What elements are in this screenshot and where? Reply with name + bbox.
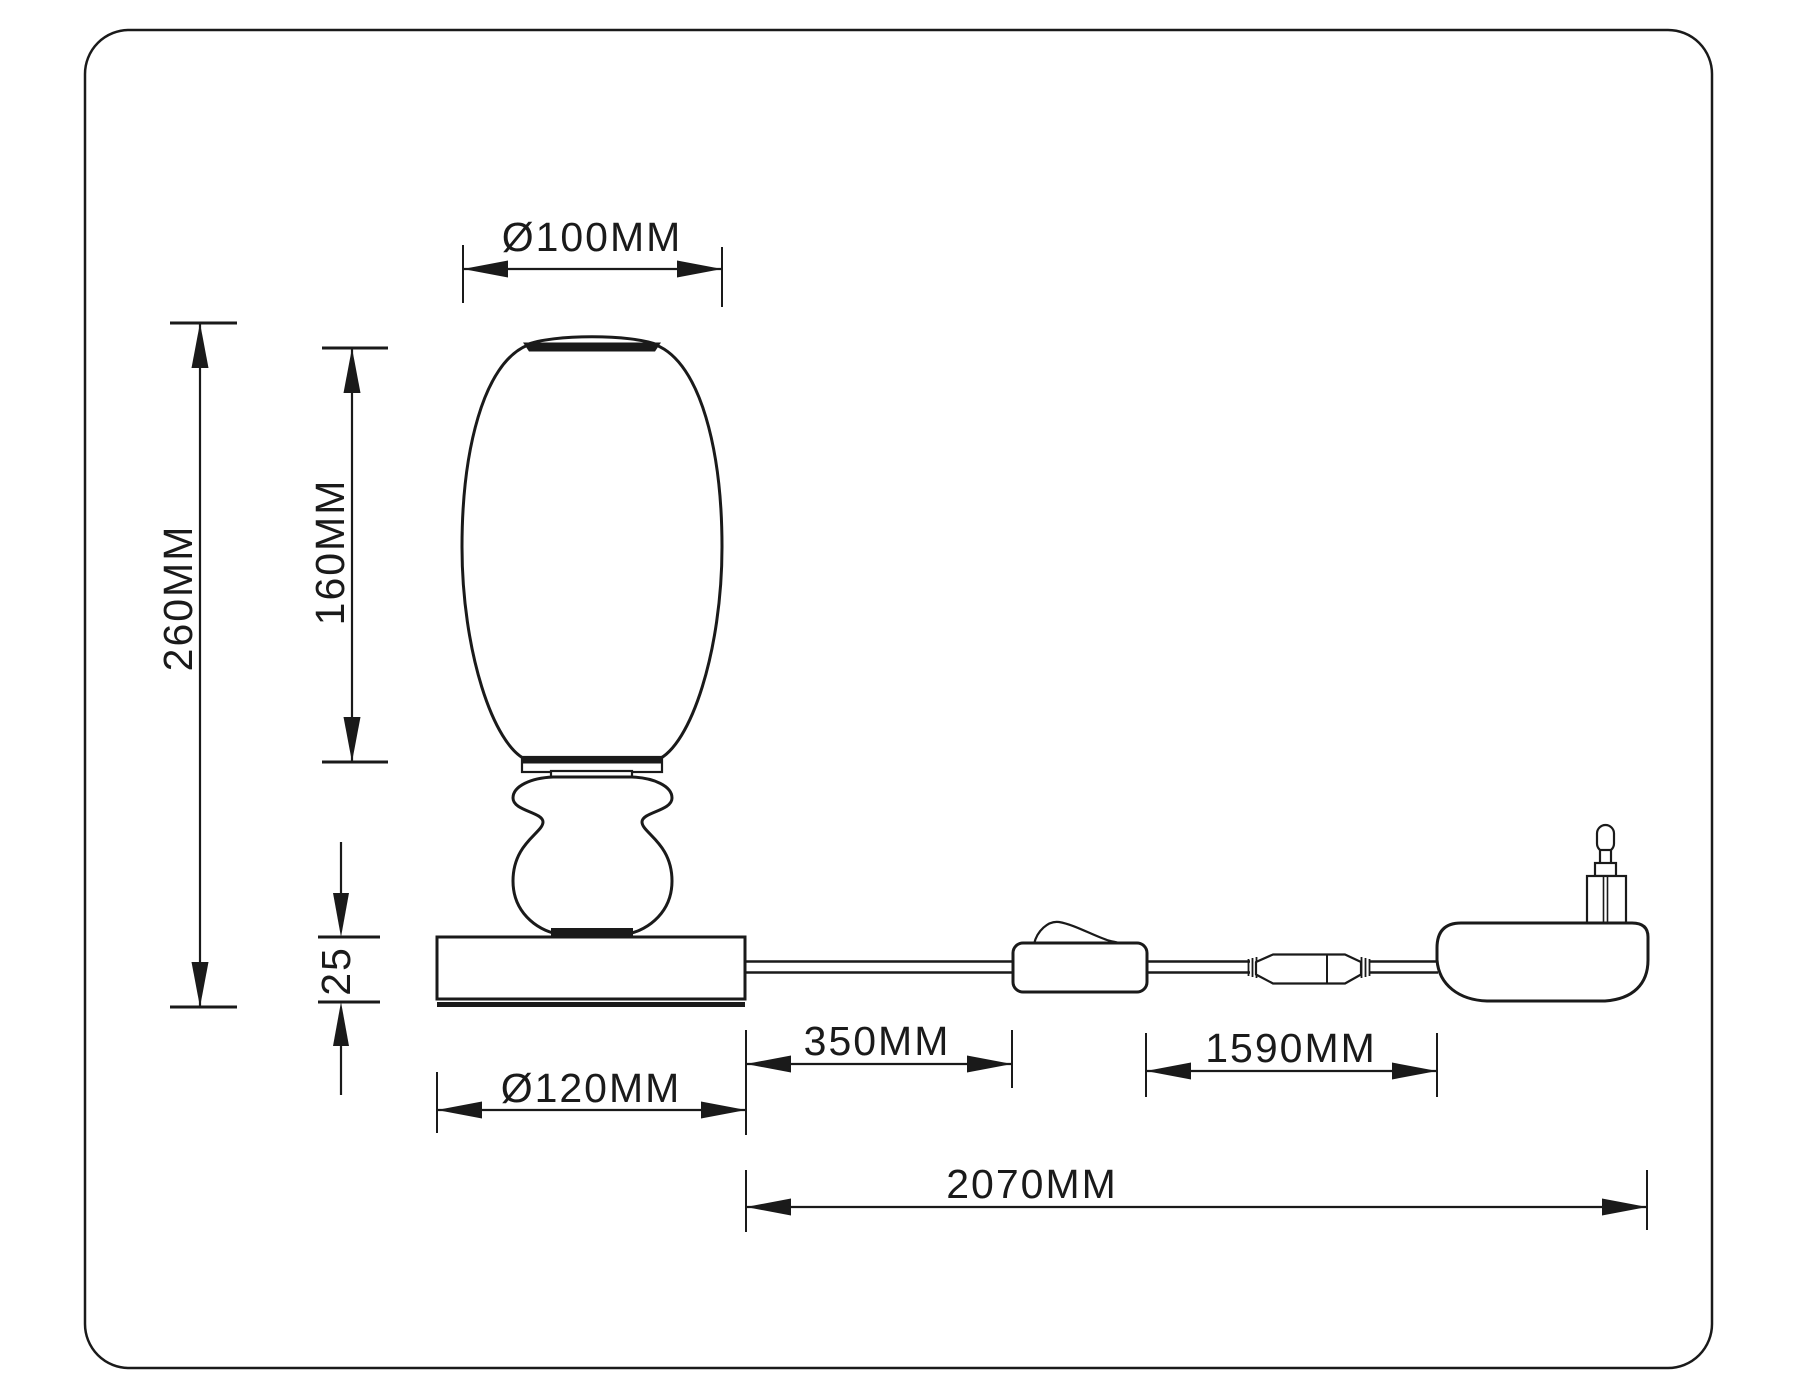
dimension-label-base-diameter: Ø120MM	[501, 1065, 682, 1111]
cord-connector	[1249, 955, 1370, 984]
shade-bottom-ring-band	[522, 757, 662, 764]
lamp-dimension-drawing-page: Ø100MM 260MM 160MM 25	[0, 0, 1800, 1400]
glass-base-foot	[551, 928, 633, 936]
plug-pin-block	[1587, 876, 1626, 924]
drawing-border	[85, 30, 1712, 1368]
dimension-label-cord-total-length: 2070MM	[946, 1161, 1118, 1207]
base-plate	[437, 937, 745, 999]
cord-connector-body	[1256, 955, 1361, 984]
plug-pin-tip	[1597, 825, 1614, 852]
dimension-label-cord-base-to-switch: 350MM	[804, 1018, 951, 1064]
shade-top-cap	[523, 343, 661, 352]
base-plate-bottom-edge	[437, 1002, 745, 1007]
dimension-label-base-height: 25	[313, 946, 359, 996]
glass-base-gourd	[513, 777, 672, 934]
lamp-dimension-drawing: Ø100MM 260MM 160MM 25	[0, 0, 1800, 1400]
dimension-label-cord-switch-to-plug: 1590MM	[1205, 1025, 1377, 1071]
dimension-label-total-height: 260MM	[155, 525, 201, 672]
dimension-label-shade-height: 160MM	[307, 479, 353, 626]
dimension-label-shade-top-diameter: Ø100MM	[502, 214, 683, 260]
inline-switch-body	[1013, 943, 1147, 992]
plug-body	[1437, 923, 1648, 1001]
plug-pin-collar	[1595, 863, 1616, 876]
